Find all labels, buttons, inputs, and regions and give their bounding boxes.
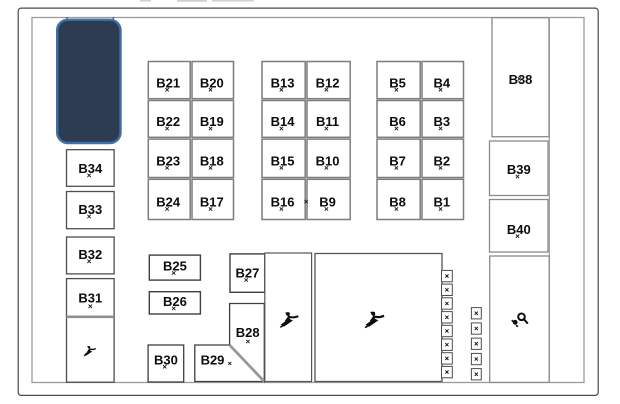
svg-text:B28: B28 [236, 325, 260, 340]
svg-text:B31: B31 [78, 291, 102, 306]
svg-text:B29: B29 [201, 353, 225, 368]
